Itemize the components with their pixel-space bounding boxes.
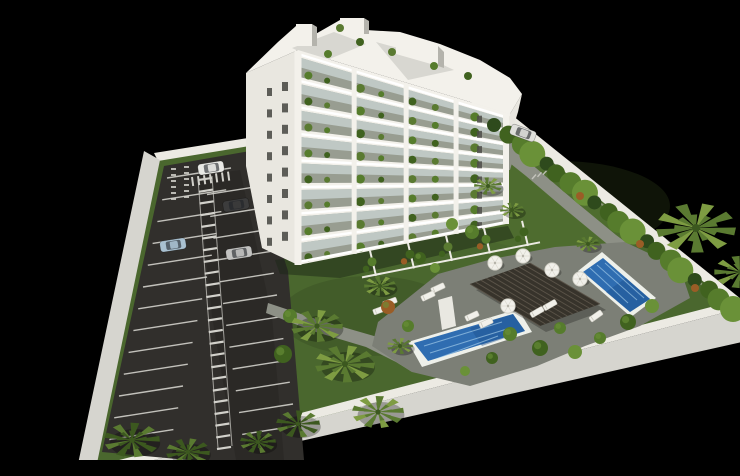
balcony-plant bbox=[304, 72, 312, 80]
roof-bulkhead-1-side bbox=[312, 24, 317, 46]
balcony-plant bbox=[356, 197, 365, 206]
balcony-plant bbox=[432, 104, 439, 111]
balcony-plant bbox=[304, 149, 312, 157]
balcony-plant bbox=[324, 177, 330, 183]
balcony-plant bbox=[324, 152, 330, 158]
architectural-render-canvas bbox=[40, 16, 740, 460]
balcony-plant bbox=[324, 226, 330, 232]
balcony-plant bbox=[408, 175, 416, 183]
balcony-plant bbox=[378, 134, 384, 140]
balcony-plant bbox=[304, 98, 312, 106]
balcony-plant bbox=[432, 212, 439, 219]
roof-bulkhead-2 bbox=[340, 18, 364, 34]
balcony-plant bbox=[356, 152, 365, 161]
balcony-plant bbox=[356, 220, 365, 229]
balcony-plant bbox=[408, 214, 416, 222]
balcony-plant bbox=[408, 98, 416, 106]
balcony-plant bbox=[408, 117, 416, 125]
balcony-plant bbox=[378, 198, 384, 204]
balcony-plant bbox=[304, 201, 312, 209]
balcony-plant bbox=[356, 84, 365, 93]
balcony-plant bbox=[378, 219, 384, 225]
balcony-plant bbox=[324, 102, 330, 108]
balcony-plant bbox=[324, 78, 330, 84]
balcony-plant bbox=[304, 123, 312, 131]
balcony-plant bbox=[324, 201, 330, 207]
balcony-plant bbox=[432, 176, 439, 183]
balcony-plant bbox=[408, 195, 416, 203]
balcony-plant bbox=[432, 194, 439, 201]
balcony-plant bbox=[378, 155, 384, 161]
render-image bbox=[40, 16, 740, 460]
balcony-plant bbox=[304, 227, 312, 235]
balcony-plant bbox=[378, 177, 384, 183]
balcony-plant bbox=[432, 158, 439, 165]
balcony-plant bbox=[356, 107, 365, 116]
balcony-plant bbox=[408, 136, 416, 144]
balcony-plant bbox=[356, 129, 365, 138]
balcony-plant bbox=[408, 156, 416, 164]
balcony-plant bbox=[432, 140, 439, 147]
balcony-plant bbox=[378, 113, 384, 119]
roof-bulkhead-1 bbox=[296, 24, 312, 46]
balcony-plant bbox=[356, 175, 365, 184]
balcony-plant bbox=[432, 122, 439, 129]
balcony-plant bbox=[324, 127, 330, 133]
balcony-plant bbox=[378, 91, 384, 97]
balcony-plant bbox=[304, 175, 312, 183]
